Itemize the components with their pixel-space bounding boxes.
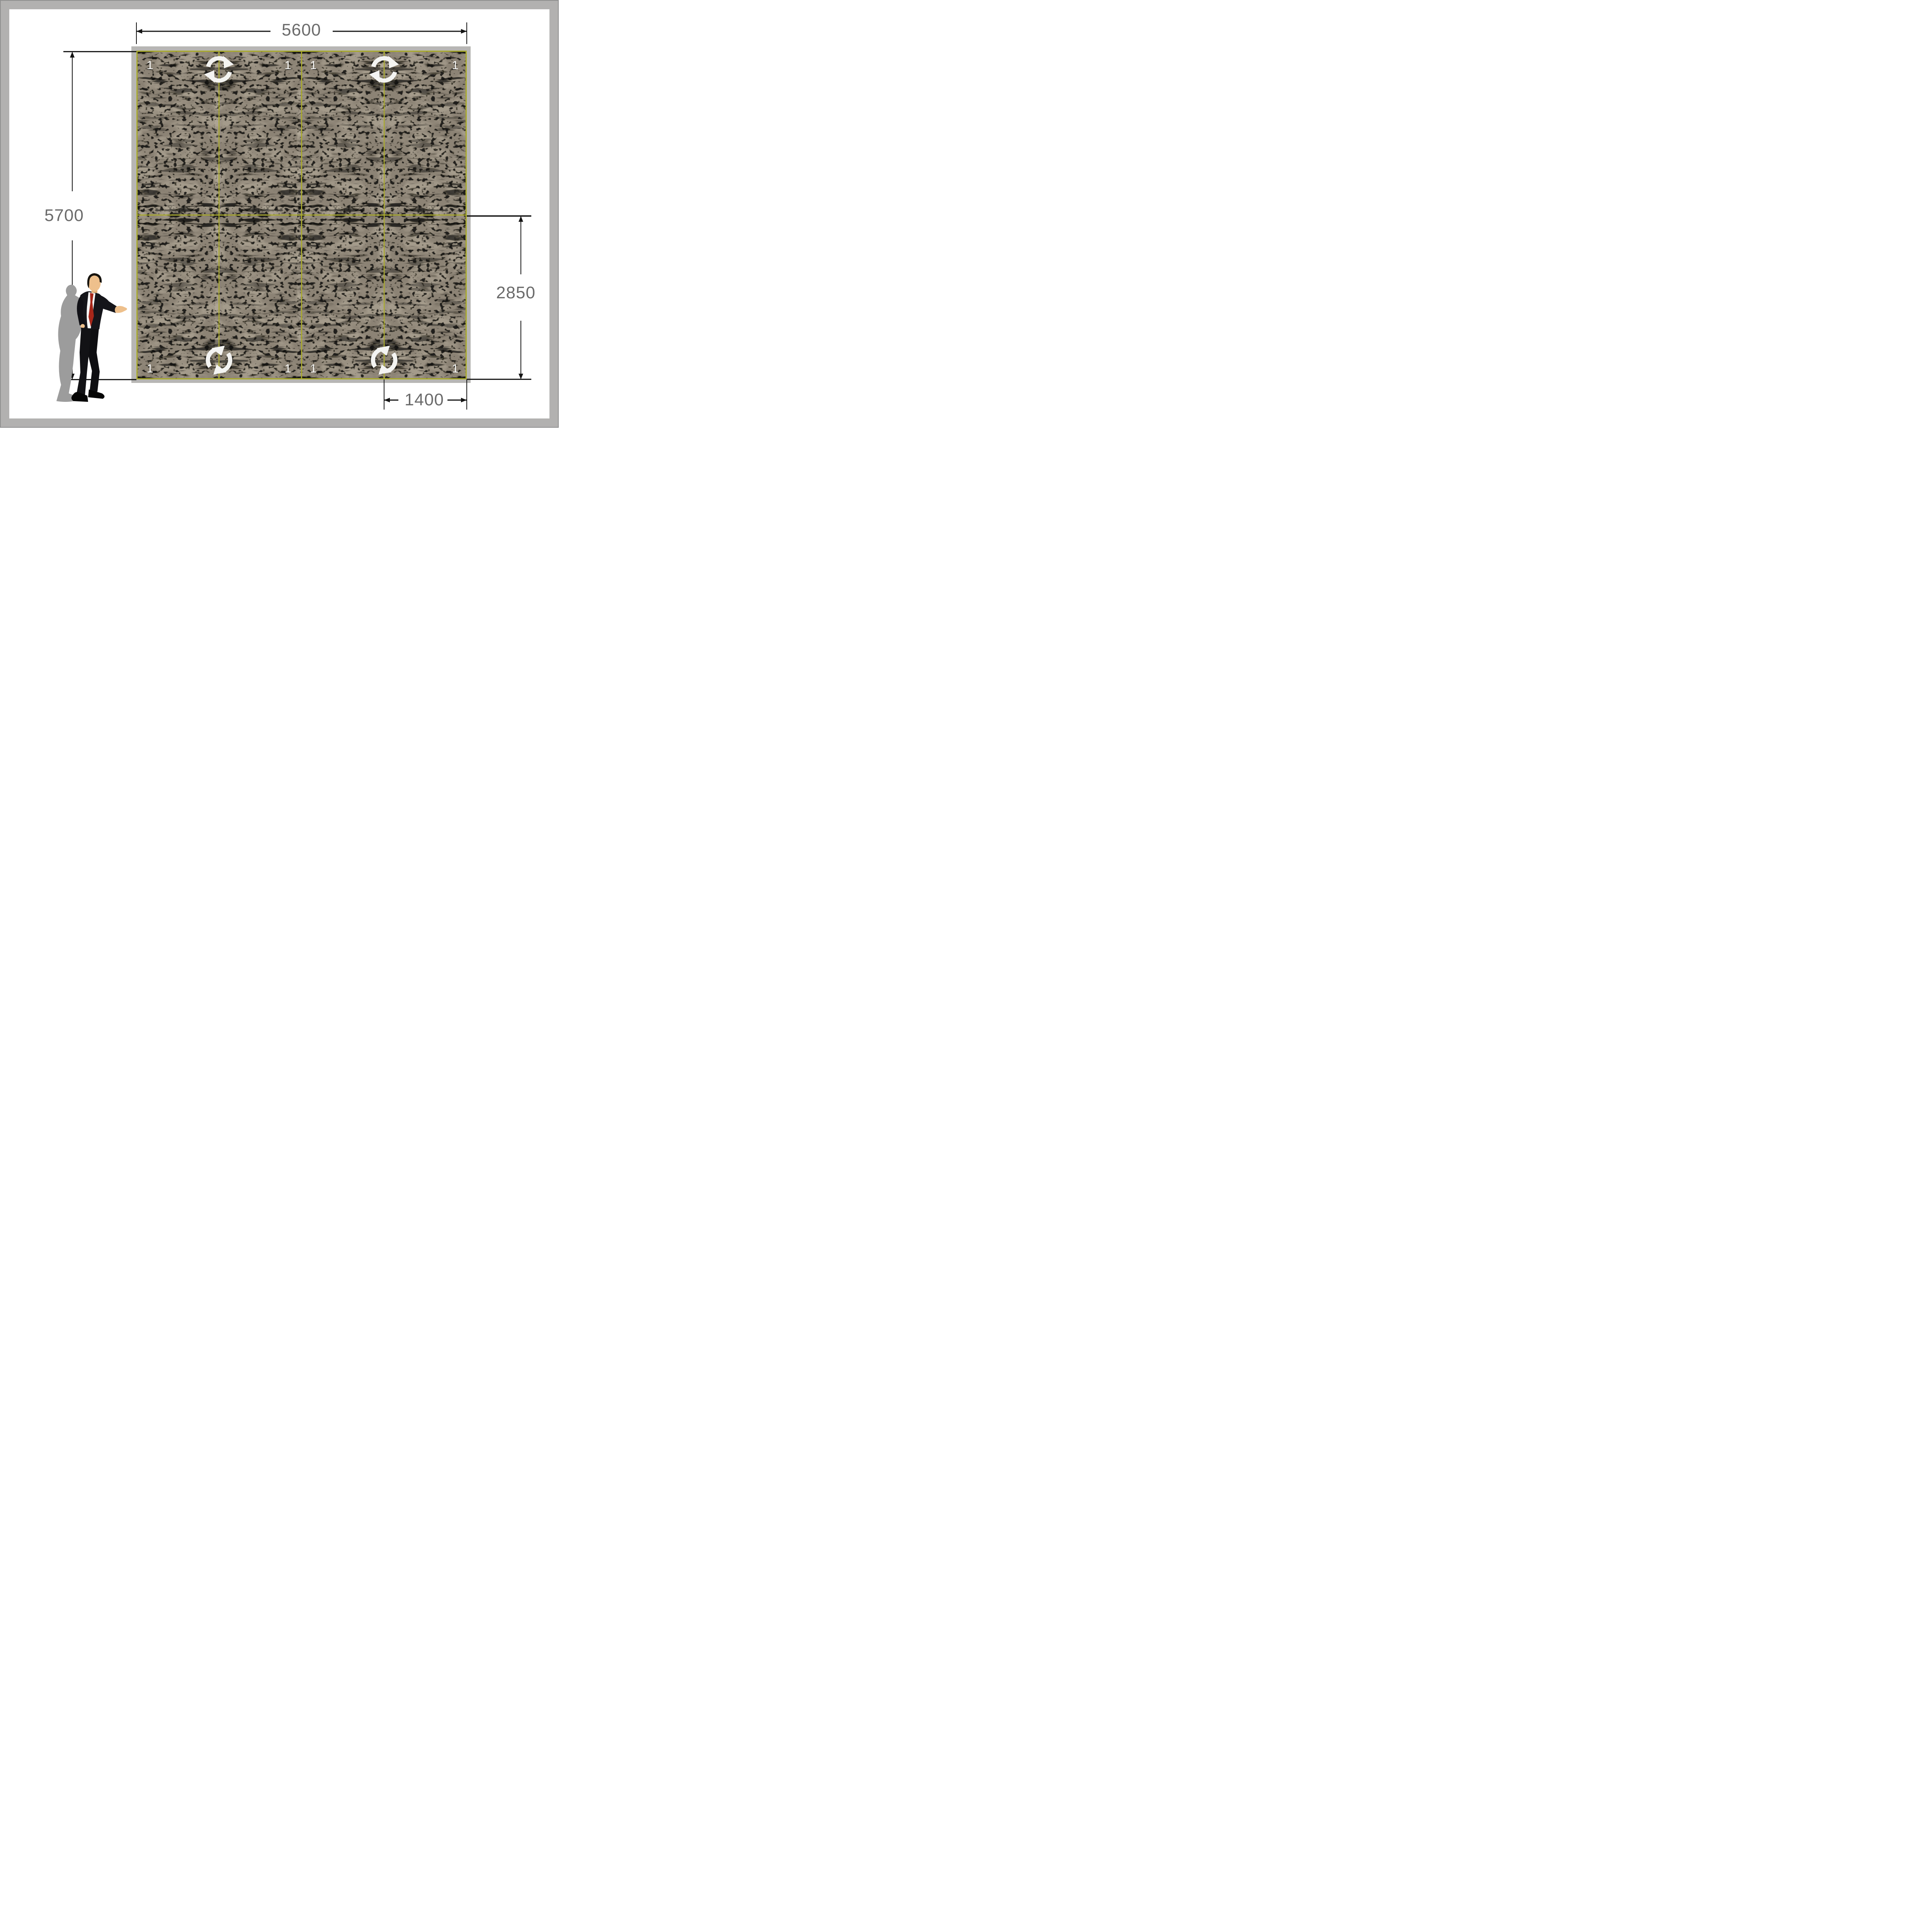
figure-front-leg — [77, 328, 91, 395]
panel-layout-drawing: 1 1 1 1 1 1 1 1 — [0, 0, 559, 428]
figure-front-shoe — [71, 392, 88, 402]
figure-right-hand — [115, 306, 127, 313]
dim-value-bottom: 1400 — [405, 390, 444, 410]
dim-value-right: 2850 — [496, 283, 536, 303]
dim-value-left: 5700 — [44, 206, 84, 225]
human-scale-figure — [50, 270, 131, 406]
figure-left-hand — [81, 324, 85, 328]
dim-value-top: 5600 — [282, 20, 321, 40]
